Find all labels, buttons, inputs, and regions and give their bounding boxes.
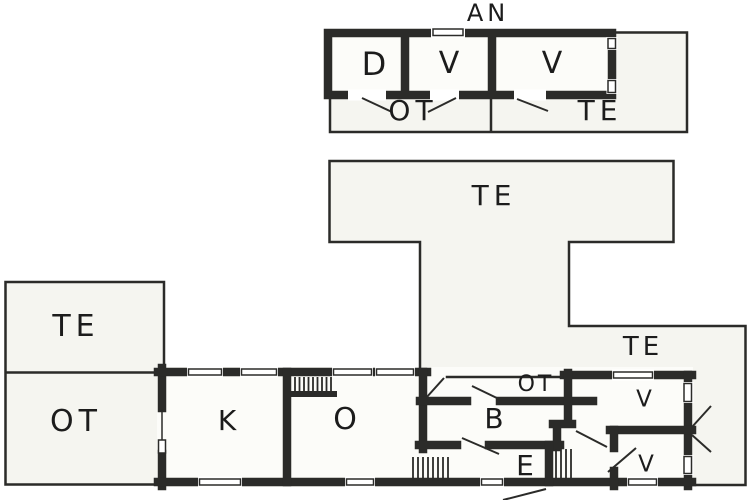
bedroom-v2-label: V: [638, 454, 654, 477]
annex-room-v1-label: V: [439, 49, 460, 79]
annex-room-v2-label: V: [542, 49, 563, 79]
right-terrace-label: TE: [623, 334, 663, 360]
bathroom-label: B: [484, 405, 503, 433]
bedroom-v1-label: V: [636, 389, 652, 412]
annex-terrace-ot-label: OT: [388, 97, 437, 125]
living-room-label: O: [333, 405, 357, 435]
entrance-label: E: [516, 452, 534, 480]
floor-plan: AN D V V OT TE TE TE OT TE K O OT B E V …: [0, 0, 750, 500]
left-open-terrace-label: OT: [50, 407, 102, 437]
annex-room-d-label: D: [362, 48, 387, 80]
main-terrace-label: TE: [472, 182, 517, 210]
annex-title-label: AN: [467, 1, 509, 25]
kitchen-label: K: [218, 407, 236, 435]
corridor-ot-label: OT: [518, 374, 555, 396]
annex-terrace-te-label: TE: [578, 97, 623, 125]
left-terrace-label: TE: [52, 312, 99, 342]
